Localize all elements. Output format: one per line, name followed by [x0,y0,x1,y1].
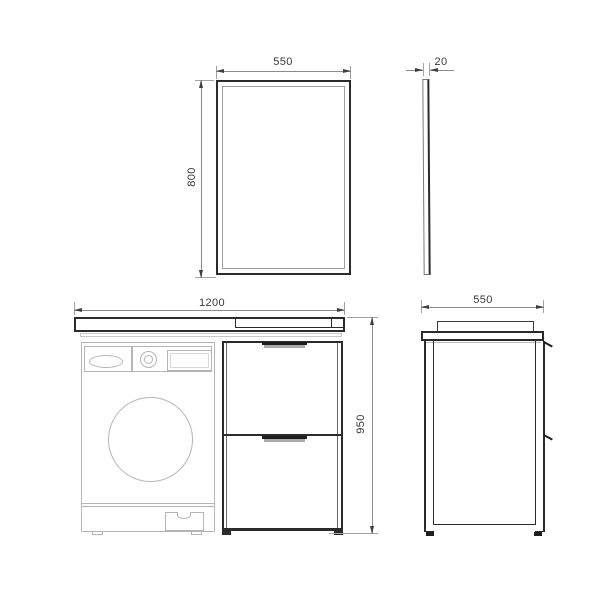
dimension-line [216,71,351,72]
cabinet-bottom-edge [222,528,343,531]
basin-rim-line [235,319,236,328]
cabinet-left-edge [222,341,224,531]
mirror-height-label: 800 [186,147,198,207]
arrow-down-icon [199,270,203,278]
arrow-left-icon [216,69,224,73]
extension-line [423,63,424,76]
side-handle-tick [543,434,553,440]
mirror-width-label: 550 [253,56,313,68]
cabinet-right-inner-line [337,343,338,529]
drawer-handle-shadow [264,439,305,442]
display-window-inner [170,353,209,368]
extension-line [195,80,214,81]
detergent-handle-oval [89,355,123,368]
arrow-left-icon [421,305,429,309]
dimension-line [372,317,373,534]
control-knob-inner [144,355,153,364]
basin-divider-line [331,319,332,328]
machine-foot [191,531,202,535]
vanity-width-label: 1200 [182,297,242,309]
arrow-left-icon [430,68,438,72]
mirror-inner-frame [222,86,345,269]
cabinet-right-edge [341,341,343,531]
arrow-up-icon [199,80,203,88]
arrow-down-icon [370,526,374,534]
vanity-height-label: 950 [355,394,367,454]
side-leg-left-inner [433,341,434,524]
side-leg-right-inner [535,341,536,524]
arrow-right-icon [536,305,544,309]
drum-door-circle [108,397,193,482]
dimension-line [74,310,345,311]
kick-panel-line [81,506,215,507]
side-handle-tick [543,341,553,347]
dimension-line [201,80,202,278]
countertop-edge-shadow [80,333,342,337]
kick-panel-line [81,503,215,504]
arrow-right-icon [337,308,345,312]
drawer-handle-shadow [264,345,305,348]
filter-drawer-notch [177,512,191,519]
side-leg-left [424,341,426,532]
machine-foot [92,531,103,535]
arrow-right-icon [343,69,351,73]
vanity-depth-label: 550 [453,294,513,306]
arrow-up-icon [370,317,374,325]
arrow-left-icon [74,308,82,312]
arrow-right-icon [415,68,423,72]
side-foot [426,532,434,536]
countertop-side [421,331,544,341]
side-panel-bottom-line [433,524,536,525]
countertop [74,317,345,332]
basin-rim-line [235,327,343,328]
mirror-thickness-label: 20 [428,56,454,68]
dimension-line [421,307,544,308]
cabinet-left-inner-line [226,343,227,529]
side-foot [534,532,542,536]
technical-drawing-canvas: 550 800 20 1200 [0,0,600,600]
mirror-side-slab [422,79,430,275]
cabinet-foot [222,531,231,535]
countertop-side-shadow [424,342,541,343]
